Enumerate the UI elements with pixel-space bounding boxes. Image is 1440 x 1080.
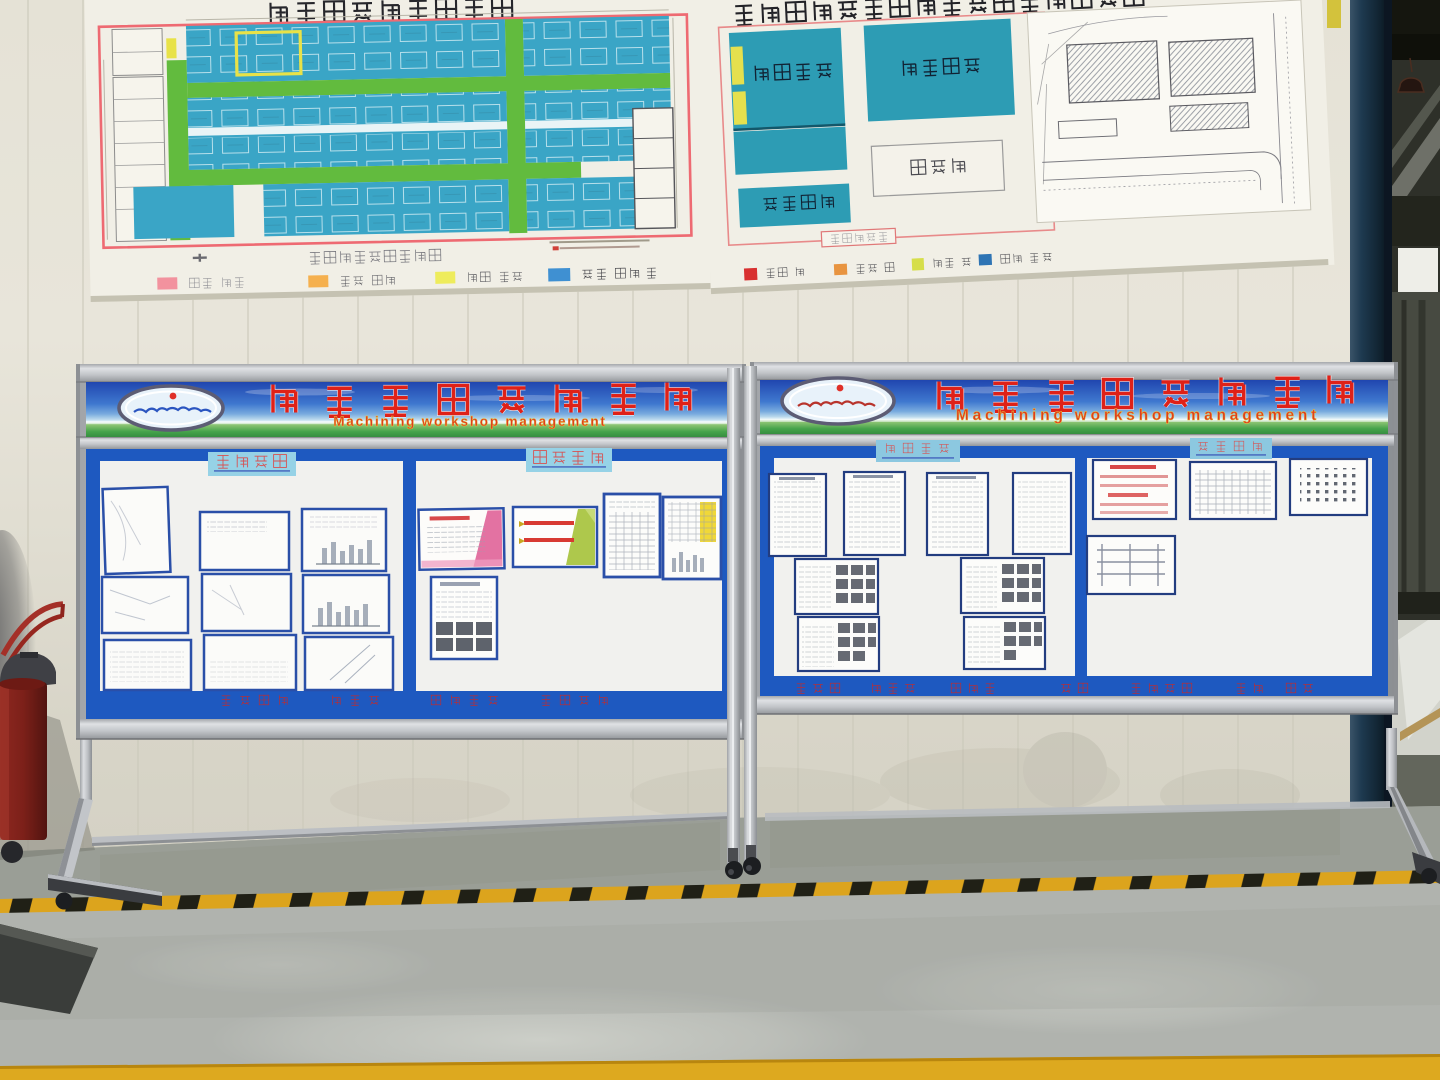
svg-text:Machining workshop management: Machining workshop management: [956, 407, 1320, 424]
svg-text:Machining workshop management: Machining workshop management: [333, 414, 606, 429]
